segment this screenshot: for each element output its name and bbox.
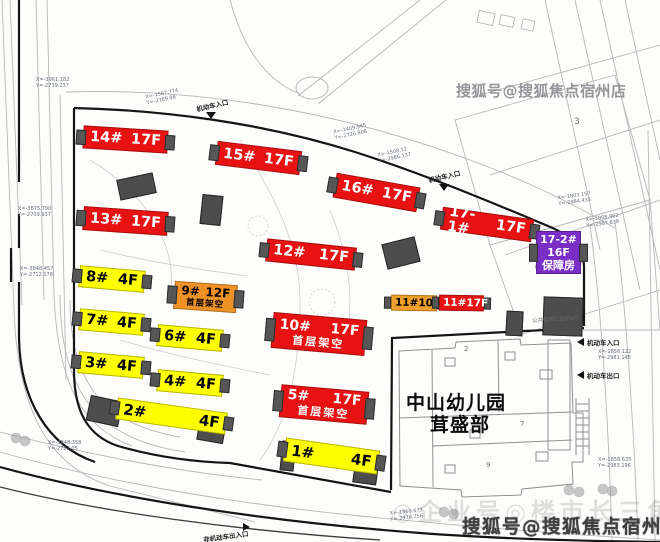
site-plan: 14#17F15#17F16#17F17-1#17F13#17F12#17F17… [0,0,660,542]
watermark-bottom: 搜狐号@搜狐焦点宿州店 [462,513,660,539]
watermark-top-right: 搜狐号@搜狐焦点宿州店 [456,80,627,101]
watermarks-layer: 搜狐号@搜狐焦点宿州店 ◎企业号◎楼市长三角 搜狐号@搜狐焦点宿州店 [0,0,660,542]
